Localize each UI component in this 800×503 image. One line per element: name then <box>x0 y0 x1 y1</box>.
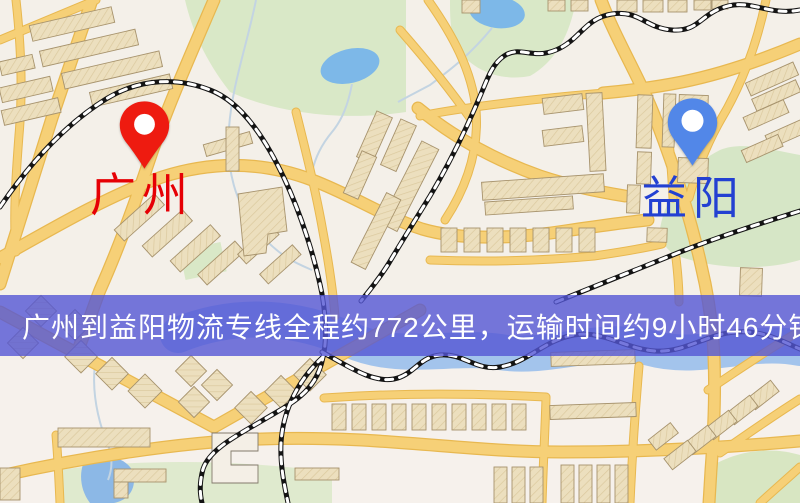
destination-pin-hole <box>681 110 703 132</box>
origin-pin[interactable] <box>119 100 170 170</box>
origin-pin-hole <box>134 114 155 135</box>
route-info-text: 广州到益阳物流专线全程约772公里，运输时间约9小时46分钟. <box>22 306 800 346</box>
map-canvas <box>0 0 800 503</box>
origin-label: 广州 <box>90 172 194 220</box>
destination-pin-icon <box>667 97 718 167</box>
destination-pin-shape <box>668 98 717 165</box>
route-info-banner: 广州到益阳物流专线全程约772公里，运输时间约9小时46分钟. <box>0 295 800 356</box>
origin-pin-icon <box>119 100 170 170</box>
destination-label: 益阳 <box>641 175 745 223</box>
logistics-route-map-screenshot: 广州 益阳 广州到益阳物流专线全程约772公里，运输时间约9小时46分钟. <box>0 0 800 503</box>
destination-pin[interactable] <box>667 97 718 167</box>
origin-pin-shape <box>120 101 169 168</box>
